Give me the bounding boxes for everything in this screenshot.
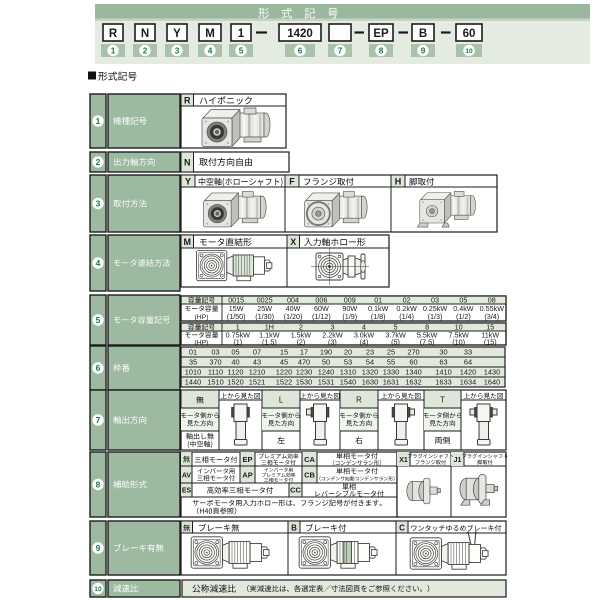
svg-text:6: 6 xyxy=(96,363,101,373)
svg-text:(2): (2) xyxy=(296,338,305,347)
svg-text:53: 53 xyxy=(344,358,352,367)
svg-text:10: 10 xyxy=(465,48,473,55)
svg-text:7: 7 xyxy=(338,45,343,55)
svg-text:H: H xyxy=(395,177,402,187)
svg-text:54: 54 xyxy=(366,358,374,367)
svg-text:M: M xyxy=(183,237,191,247)
svg-text:ES: ES xyxy=(182,488,192,495)
svg-text:50: 50 xyxy=(322,358,330,367)
svg-text:1510: 1510 xyxy=(207,378,223,387)
svg-text:1634: 1634 xyxy=(460,378,476,387)
svg-text:1632: 1632 xyxy=(405,378,421,387)
svg-text:07: 07 xyxy=(253,348,261,357)
svg-text:(1): (1) xyxy=(233,338,242,347)
svg-text:(1/12): (1/12) xyxy=(312,312,331,321)
svg-text:N: N xyxy=(141,28,149,40)
svg-text:370: 370 xyxy=(209,358,221,367)
svg-text:2: 2 xyxy=(96,157,101,167)
svg-text:470: 470 xyxy=(298,358,310,367)
svg-text:1010: 1010 xyxy=(185,368,201,377)
svg-text:20: 20 xyxy=(344,348,352,357)
svg-text:1633: 1633 xyxy=(435,378,451,387)
svg-text:3: 3 xyxy=(96,199,101,209)
svg-text:10: 10 xyxy=(94,586,102,593)
svg-text:EP: EP xyxy=(373,28,389,40)
svg-text:17: 17 xyxy=(300,348,308,357)
svg-text:(1/4): (1/4) xyxy=(399,312,414,321)
svg-text:45: 45 xyxy=(280,358,288,367)
svg-text:(1/2): (1/2) xyxy=(456,312,471,321)
svg-text:4: 4 xyxy=(96,258,101,268)
svg-text:01: 01 xyxy=(189,348,197,357)
svg-text:(1/20): (1/20) xyxy=(284,312,303,321)
svg-text:B: B xyxy=(291,524,297,533)
svg-text:Y: Y xyxy=(185,177,191,187)
svg-text:30: 30 xyxy=(439,348,447,357)
svg-text:270: 270 xyxy=(407,348,419,357)
svg-text:40: 40 xyxy=(231,358,239,367)
svg-text:CA: CA xyxy=(304,455,315,464)
svg-text:C: C xyxy=(399,524,405,533)
svg-text:55: 55 xyxy=(387,358,395,367)
svg-text:1540: 1540 xyxy=(340,378,356,387)
svg-text:L: L xyxy=(279,395,284,404)
svg-text:190: 190 xyxy=(320,348,332,357)
svg-text:EP: EP xyxy=(242,455,252,464)
svg-text:(1/8): (1/8) xyxy=(371,312,386,321)
svg-text:1: 1 xyxy=(111,45,116,55)
svg-text:(3): (3) xyxy=(328,338,337,347)
svg-text:(HP): (HP) xyxy=(195,339,209,346)
svg-text:1310: 1310 xyxy=(340,368,356,377)
svg-text:1522: 1522 xyxy=(276,378,292,387)
svg-text:43: 43 xyxy=(253,358,261,367)
svg-text:R: R xyxy=(109,28,118,40)
svg-text:1240: 1240 xyxy=(318,368,334,377)
svg-text:1521: 1521 xyxy=(249,378,265,387)
svg-text:X: X xyxy=(290,237,296,247)
svg-text:03: 03 xyxy=(211,348,219,357)
svg-text:J1: J1 xyxy=(454,457,462,464)
svg-text:F: F xyxy=(289,177,295,187)
svg-text:15: 15 xyxy=(280,348,288,357)
svg-text:1230: 1230 xyxy=(296,368,312,377)
svg-text:T: T xyxy=(440,395,445,404)
svg-text:23: 23 xyxy=(366,348,374,357)
svg-text:(HP): (HP) xyxy=(195,314,209,321)
svg-text:(1/50): (1/50) xyxy=(227,312,246,321)
svg-text:(5): (5) xyxy=(391,338,400,347)
svg-text:05: 05 xyxy=(231,348,239,357)
svg-text:1330: 1330 xyxy=(383,368,399,377)
svg-text:1520: 1520 xyxy=(227,378,243,387)
svg-text:(3/4): (3/4) xyxy=(484,312,499,321)
svg-text:35: 35 xyxy=(189,358,197,367)
svg-text:1320: 1320 xyxy=(362,368,378,377)
svg-text:CB: CB xyxy=(304,471,315,480)
svg-text:64: 64 xyxy=(464,358,472,367)
svg-text:63: 63 xyxy=(439,358,447,367)
svg-text:1340: 1340 xyxy=(405,368,421,377)
svg-text:60: 60 xyxy=(409,358,417,367)
svg-text:7: 7 xyxy=(96,415,101,425)
svg-text:3: 3 xyxy=(175,45,180,55)
svg-text:1630: 1630 xyxy=(362,378,378,387)
svg-text:(1/3): (1/3) xyxy=(428,312,443,321)
svg-text:5: 5 xyxy=(96,315,101,325)
svg-text:1210: 1210 xyxy=(249,368,265,377)
svg-text:1631: 1631 xyxy=(383,378,399,387)
svg-text:R: R xyxy=(184,96,191,106)
svg-text:8: 8 xyxy=(379,45,384,55)
svg-text:1530: 1530 xyxy=(296,378,312,387)
svg-text:25: 25 xyxy=(387,348,395,357)
svg-text:1110: 1110 xyxy=(208,368,223,377)
svg-text:(4): (4) xyxy=(360,338,369,347)
svg-text:2: 2 xyxy=(143,45,148,55)
svg-text:1640: 1640 xyxy=(484,378,500,387)
svg-text:(7.5): (7.5) xyxy=(420,338,435,347)
svg-text:Y: Y xyxy=(173,28,181,40)
svg-text:9: 9 xyxy=(421,45,426,55)
svg-text:(10): (10) xyxy=(452,338,465,347)
svg-text:R: R xyxy=(356,395,362,404)
svg-text:60: 60 xyxy=(463,28,476,40)
svg-text:X1: X1 xyxy=(399,457,408,464)
svg-text:1440: 1440 xyxy=(185,378,201,387)
svg-text:B: B xyxy=(419,28,427,40)
svg-text:9: 9 xyxy=(96,543,101,553)
svg-text:1430: 1430 xyxy=(484,368,500,377)
svg-text:1410: 1410 xyxy=(435,368,451,377)
svg-text:1220: 1220 xyxy=(276,368,292,377)
svg-text:8: 8 xyxy=(96,480,101,490)
svg-text:AP: AP xyxy=(242,471,252,480)
svg-text:1: 1 xyxy=(238,28,245,40)
svg-text:1420: 1420 xyxy=(460,368,476,377)
svg-text:1531: 1531 xyxy=(318,378,334,387)
svg-text:(1/30): (1/30) xyxy=(255,312,274,321)
svg-text:(1.5): (1.5) xyxy=(262,338,277,347)
svg-text:33: 33 xyxy=(464,348,472,357)
svg-text:CC: CC xyxy=(290,486,301,495)
svg-text:(15): (15) xyxy=(484,338,497,347)
svg-text:1420: 1420 xyxy=(287,28,313,40)
svg-text:1120: 1120 xyxy=(228,368,244,377)
svg-text:M: M xyxy=(205,28,215,40)
svg-text:AV: AV xyxy=(182,473,192,480)
svg-text:4: 4 xyxy=(208,45,213,55)
svg-text:N: N xyxy=(184,158,191,168)
svg-text:5: 5 xyxy=(239,45,244,55)
svg-text:1: 1 xyxy=(96,116,101,126)
svg-text:(1/9): (1/9) xyxy=(342,312,357,321)
svg-text:6: 6 xyxy=(298,45,303,55)
